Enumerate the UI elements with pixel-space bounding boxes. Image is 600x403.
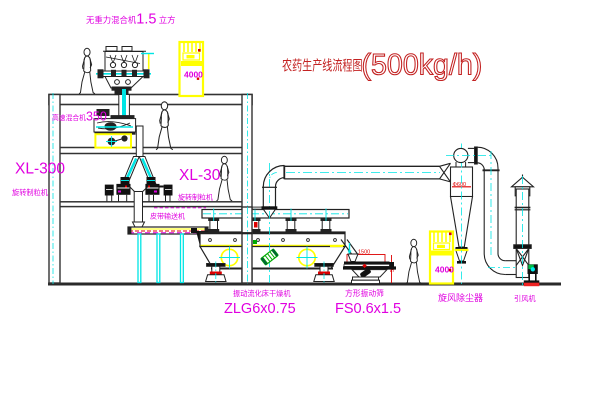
svg-text:方形振动筛: 方形振动筛 [345,288,384,298]
svg-text:引风机: 引风机 [514,294,536,303]
svg-text:旋转制粒机: 旋转制粒机 [12,188,49,197]
svg-text:皮带输送机: 皮带输送机 [150,212,185,221]
svg-text:农药生产线流程图: 农药生产线流程图 [282,57,363,74]
svg-text:ZLG6x0.75: ZLG6x0.75 [224,301,296,317]
svg-text:XL-300: XL-300 [15,161,65,178]
svg-text:1500: 1500 [358,250,370,256]
svg-text:旋转制粒机: 旋转制粒机 [178,193,213,202]
svg-text:4000: 4000 [435,265,454,275]
svg-text:4000: 4000 [184,70,203,80]
svg-text:FS0.6x1.5: FS0.6x1.5 [335,301,401,317]
svg-text:(500kg/h): (500kg/h) [362,49,483,81]
svg-text:振动流化床干燥机: 振动流化床干燥机 [233,289,291,298]
svg-text:旋风除尘器: 旋风除尘器 [438,292,483,303]
